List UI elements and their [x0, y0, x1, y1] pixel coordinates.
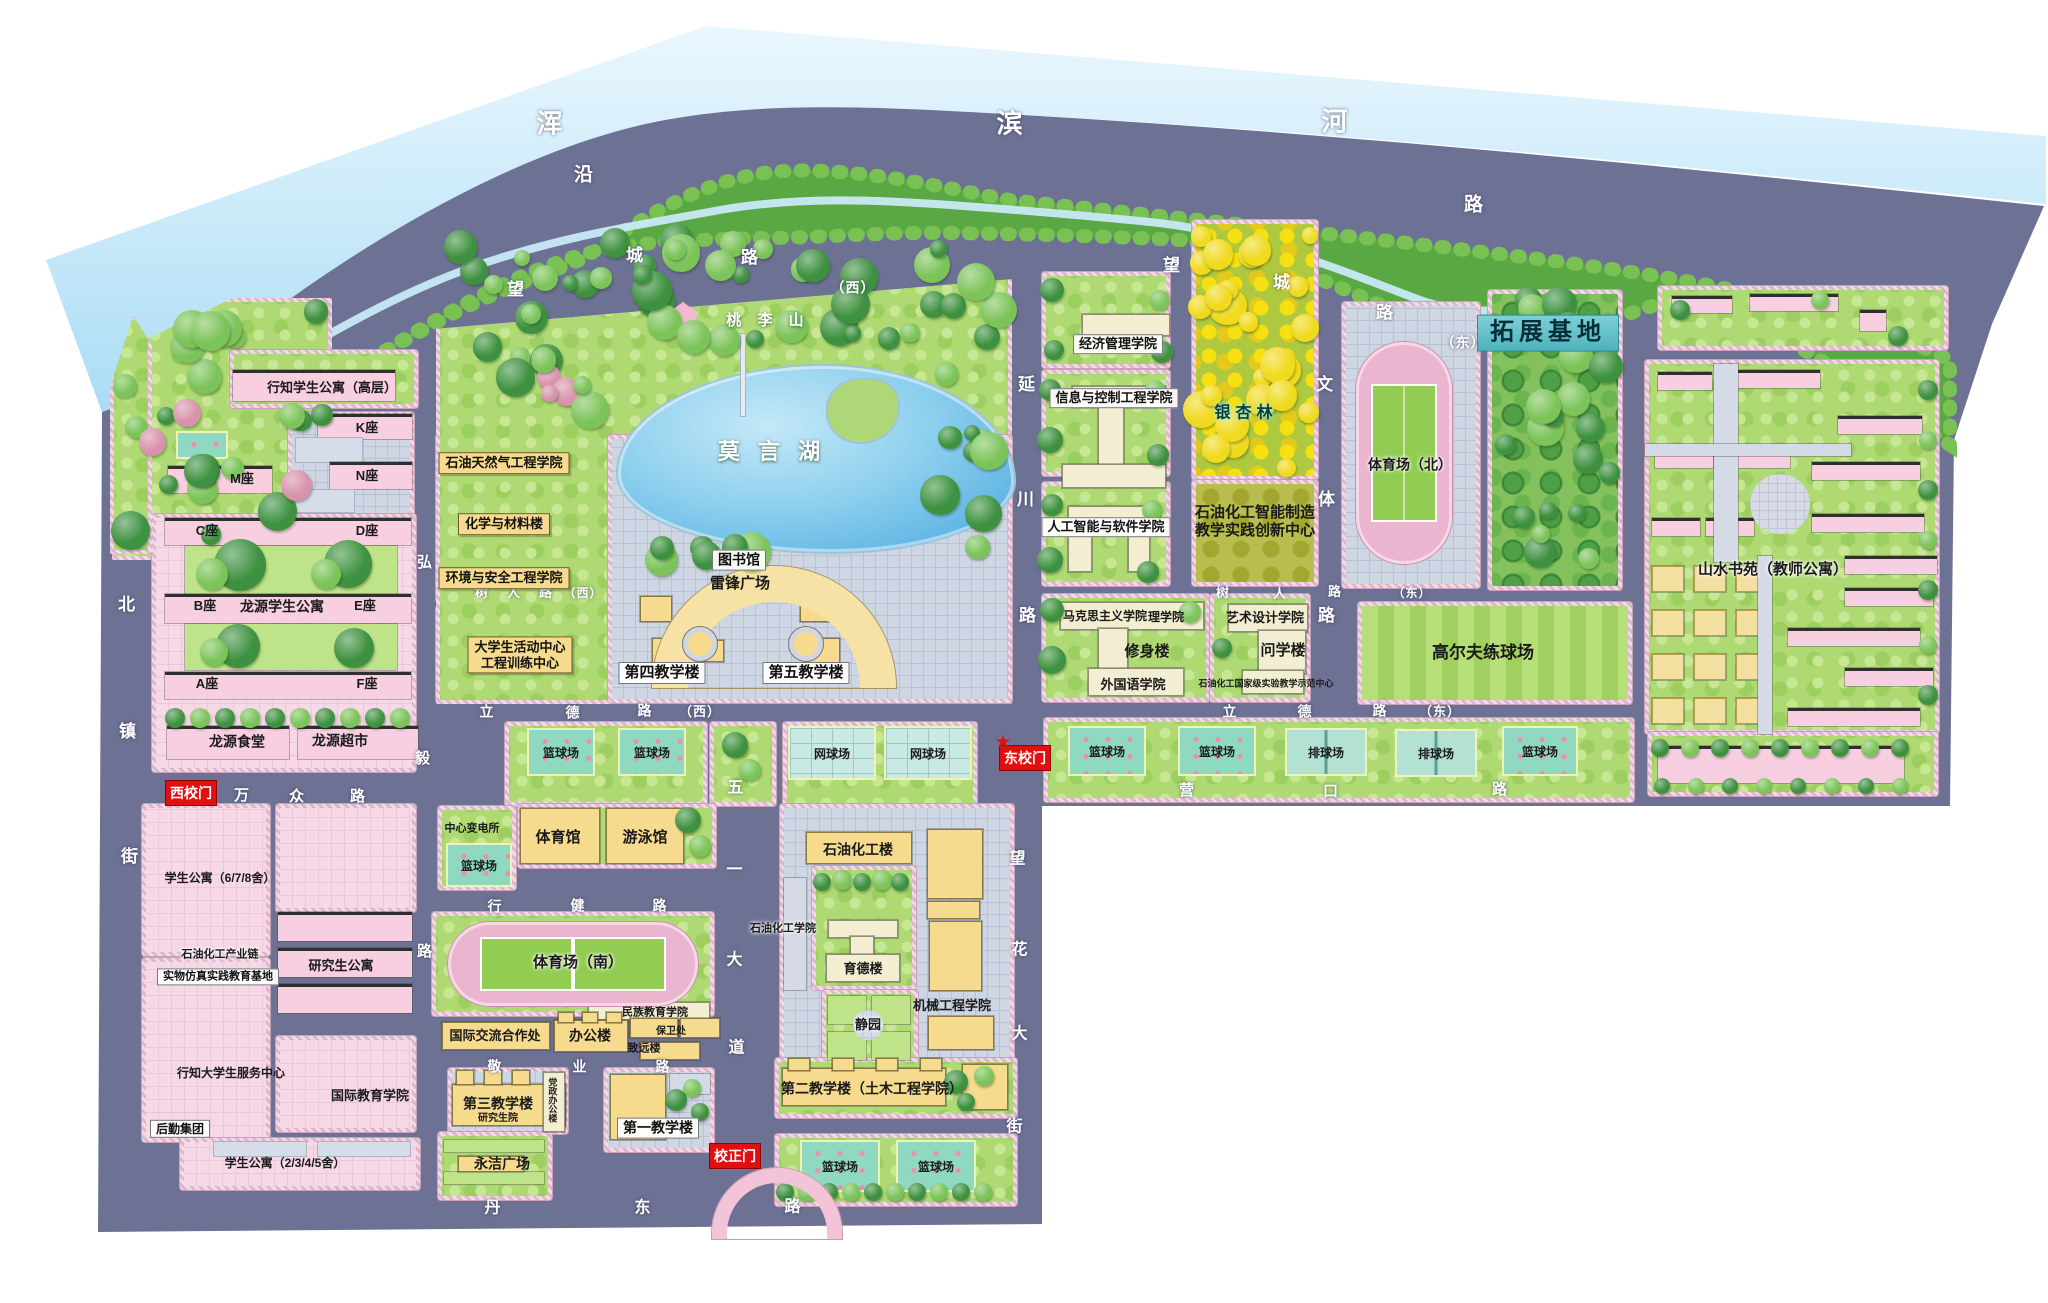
tree-icon	[872, 870, 892, 890]
tree-icon	[1861, 739, 1879, 757]
tree-icon	[1711, 739, 1729, 757]
map-label: 路	[656, 1059, 671, 1076]
map-label: 街	[121, 847, 139, 867]
map-label: 石油化工产业链	[182, 948, 259, 961]
tree-icon	[111, 511, 150, 550]
map-label: 树	[1216, 585, 1230, 601]
tree-icon	[304, 299, 329, 324]
tree-icon	[390, 708, 410, 728]
court-volleyball: 排球场	[1285, 728, 1367, 776]
building	[1652, 698, 1684, 724]
map-label: 五	[727, 778, 744, 797]
map-label: 路	[350, 788, 366, 806]
map-label: 街	[1006, 1117, 1023, 1136]
map-label: 口	[1323, 783, 1339, 801]
building	[832, 1058, 854, 1071]
building	[296, 438, 362, 462]
building	[1658, 372, 1712, 390]
building	[1062, 464, 1166, 488]
teaching-building-rotunda	[682, 626, 718, 662]
tree-icon	[311, 559, 341, 589]
tree-icon	[484, 275, 503, 294]
map-label: 立	[1223, 704, 1238, 721]
court-tennis: 网球场	[788, 726, 876, 780]
tree-icon	[311, 404, 333, 426]
tree-icon	[1040, 278, 1064, 302]
building	[920, 1058, 942, 1071]
tree-icon	[1212, 638, 1232, 658]
map-label: D座	[356, 523, 378, 539]
tree-icon	[970, 432, 1008, 470]
map-label: 问学楼	[1260, 642, 1305, 660]
building	[1788, 708, 1920, 726]
river-name-char: 河	[1321, 106, 1348, 137]
map-label: K座	[356, 420, 378, 436]
court-basketball: 篮球场	[618, 728, 686, 776]
map-label: 育德楼	[843, 961, 882, 977]
court-basketball: 篮球场	[1178, 726, 1256, 776]
building	[1652, 654, 1684, 680]
tree-icon	[1037, 547, 1063, 573]
tree-icon	[1260, 347, 1296, 383]
tree-icon	[1670, 300, 1690, 320]
tree-icon	[1576, 414, 1604, 442]
building	[928, 1016, 994, 1050]
tree-icon	[1756, 778, 1772, 794]
building	[278, 984, 412, 1013]
tree-icon	[215, 708, 235, 728]
parcel	[276, 804, 416, 912]
map-label: 体	[1318, 490, 1336, 510]
map-label: 路	[1376, 303, 1394, 323]
tree-icon	[184, 454, 218, 488]
map-label: 延	[1018, 375, 1036, 395]
map-label: 山水书苑（教师公寓）	[1698, 561, 1848, 579]
building	[1694, 698, 1726, 724]
map-label: 图书馆	[712, 550, 766, 571]
tree-icon	[1858, 778, 1874, 794]
map-label: （东）	[1392, 586, 1431, 600]
tree-icon	[473, 332, 502, 361]
tree-icon	[1568, 504, 1586, 522]
map-label: 路	[417, 943, 433, 961]
map-label: 致远楼	[628, 1042, 661, 1055]
tree-icon	[165, 708, 185, 728]
building	[1758, 556, 1772, 734]
tree-icon	[1038, 646, 1066, 674]
tree-icon	[365, 708, 385, 728]
tree-icon	[315, 708, 335, 728]
tree-icon	[930, 240, 948, 258]
tree-icon	[200, 638, 228, 666]
tree-icon	[1831, 739, 1849, 757]
building	[680, 1018, 720, 1038]
map-label: 大	[1011, 1024, 1028, 1043]
map-label: 体育馆	[535, 829, 580, 847]
building	[1652, 566, 1684, 592]
map-label: 静园	[855, 1017, 881, 1033]
tree-icon	[813, 873, 831, 891]
map-label: 城	[1273, 273, 1291, 293]
map-label: 路	[1373, 703, 1388, 720]
map-label: 中心变电所	[445, 822, 500, 835]
tree-icon	[1037, 427, 1063, 453]
map-label: 第五教学楼	[762, 662, 849, 684]
gate-star-icon: ★	[995, 732, 1011, 753]
tree-icon	[920, 475, 960, 515]
tree-icon	[173, 399, 201, 427]
tree-icon	[974, 1066, 994, 1086]
tree-icon	[265, 708, 285, 728]
map-label: 办公楼	[569, 1028, 611, 1045]
map-label: 环境与安全工程学院	[438, 567, 569, 589]
west-gate-badge: 西校门	[165, 780, 217, 806]
map-label: 行	[488, 899, 503, 916]
tree-icon	[1202, 434, 1231, 463]
map-label: 立	[480, 704, 495, 721]
building	[456, 1070, 474, 1085]
north-stadium	[1356, 342, 1452, 564]
map-label: 路	[741, 248, 759, 268]
building	[1714, 364, 1738, 562]
river-name-char: 浑	[536, 108, 563, 139]
map-label: N座	[356, 468, 378, 484]
parcel	[276, 1036, 416, 1132]
map-label: （西）	[831, 280, 876, 297]
map-label: 路	[638, 703, 653, 720]
map-label: 莫 言 湖	[718, 439, 826, 465]
tree-icon	[1918, 580, 1938, 600]
tree-icon	[1539, 502, 1557, 520]
tree-icon	[1741, 739, 1759, 757]
map-label: 保卫处	[656, 1026, 686, 1038]
map-label: 路	[653, 898, 668, 915]
tree-icon	[1150, 290, 1170, 310]
tree-icon	[190, 708, 210, 728]
map-label: 第二教学楼（土木工程学院）	[781, 1081, 963, 1098]
map-label: 德	[566, 705, 581, 722]
court-basketball: 篮球场	[527, 728, 595, 776]
tree-icon	[1919, 636, 1937, 654]
court-basketball: 篮球场	[1068, 726, 1146, 776]
map-label: 大	[726, 950, 743, 969]
map-label: 城	[626, 246, 644, 266]
map-label: M座	[230, 471, 254, 487]
building	[1082, 314, 1170, 336]
tree-icon	[1918, 480, 1938, 500]
map-label: E座	[354, 598, 376, 614]
map-label: 永洁广场	[474, 1156, 530, 1173]
map-label: 体育场（南）	[533, 954, 623, 972]
tree-icon	[722, 732, 748, 758]
building	[1694, 610, 1726, 636]
map-label: 机械工程学院	[913, 998, 991, 1014]
tree-icon	[1892, 778, 1908, 794]
map-label: 路	[1492, 781, 1508, 799]
building	[1652, 610, 1684, 636]
map-label: 龙源食堂	[209, 734, 265, 751]
map-label: 马克思主义学院	[1063, 609, 1147, 623]
map-label: 学生公寓（2/3/4/5舍）	[225, 1156, 346, 1170]
map-label: 龙源超市	[312, 733, 368, 750]
building	[927, 901, 980, 919]
map-label: 信息与控制工程学院	[1049, 388, 1178, 408]
building	[1812, 462, 1920, 480]
tree-icon	[290, 708, 310, 728]
court-volleyball: 排球场	[1395, 729, 1477, 777]
tree-icon	[941, 293, 966, 318]
parcel	[142, 958, 270, 1142]
map-label: 拓展基地	[1477, 315, 1619, 352]
tree-icon	[891, 873, 909, 891]
tree-icon	[1291, 314, 1319, 342]
tree-icon	[1919, 431, 1937, 449]
tree-icon	[139, 428, 167, 456]
court-basketball: 篮球场	[446, 843, 512, 887]
tree-icon	[1790, 778, 1806, 794]
tree-icon	[1688, 778, 1704, 794]
tree-icon	[1239, 312, 1259, 332]
campus-map: 篮球场篮球场网球场网球场篮球场篮球场排球场排球场篮球场篮球场篮球场篮球场浑河滨沿…	[0, 0, 2048, 1303]
building	[1645, 444, 1851, 456]
map-label: （东）	[1419, 704, 1461, 720]
map-label: 实物仿真实践教育基地	[157, 968, 279, 985]
map-label: 德	[1298, 704, 1313, 721]
tree-icon	[240, 708, 260, 728]
tree-icon	[1801, 739, 1819, 757]
tree-icon	[878, 327, 900, 349]
building	[278, 912, 412, 941]
map-label: 望	[1163, 256, 1181, 276]
map-label: 文	[1316, 375, 1334, 395]
map-label: 大学生活动中心 工程训练中心	[467, 636, 572, 673]
tree-icon	[157, 407, 175, 425]
map-label: 研究生公寓	[308, 958, 373, 974]
map-label: 石油化工国家级实验教学示范中心	[1198, 679, 1333, 690]
tree-icon	[1137, 561, 1159, 583]
tree-icon	[531, 347, 556, 372]
tree-icon	[845, 325, 862, 342]
circular-plaza	[1750, 474, 1810, 534]
map-label: 研究生院	[478, 1113, 518, 1125]
building	[927, 829, 983, 899]
map-label: 北	[118, 595, 136, 615]
tree-icon	[279, 403, 306, 430]
tree-icon	[1302, 227, 1319, 244]
tree-icon	[974, 324, 1000, 350]
map-label: 石油化工楼	[823, 842, 893, 859]
map-label: 路	[1328, 584, 1342, 600]
map-label: 人工智能与软件学院	[1041, 517, 1170, 537]
map-label: 第三教学楼	[463, 1096, 533, 1113]
map-label: C座	[196, 523, 218, 539]
map-label: 业	[573, 1059, 588, 1076]
tree-icon	[1589, 350, 1622, 383]
building	[558, 1012, 574, 1023]
map-label: 沿	[574, 165, 594, 188]
map-label: 镇	[119, 722, 137, 742]
map-label: 高尔夫练球场	[1432, 643, 1534, 663]
tree-icon	[1041, 494, 1063, 516]
tree-icon	[532, 265, 558, 291]
court-basketball: 篮球场	[1502, 726, 1578, 776]
tree-icon	[334, 628, 374, 668]
tree-icon	[935, 362, 958, 385]
map-label: 路	[784, 1197, 801, 1216]
map-label: 滨	[996, 108, 1023, 139]
tree-icon	[1918, 685, 1938, 705]
tree-icon	[705, 250, 736, 281]
map-label: （西）	[679, 704, 721, 720]
tree-icon	[974, 1183, 992, 1201]
tree-icon	[340, 708, 360, 728]
building	[318, 1142, 410, 1156]
building	[214, 1142, 306, 1156]
tree-icon	[1277, 459, 1296, 478]
tree-icon	[281, 470, 312, 501]
tree-icon	[952, 1183, 970, 1201]
building	[606, 1012, 622, 1023]
tree-icon	[650, 536, 674, 560]
tree-icon	[930, 1183, 948, 1201]
map-label: 万	[234, 787, 250, 805]
tree-icon	[677, 320, 710, 353]
building	[1838, 416, 1922, 434]
map-label: 艺术设计学院	[1226, 610, 1304, 626]
map-label: 弘	[417, 554, 433, 572]
building	[1098, 406, 1124, 466]
map-label: 化学与材料楼	[458, 513, 550, 535]
building	[929, 921, 982, 991]
building	[876, 1058, 898, 1071]
tree-icon	[1654, 778, 1670, 794]
map-label: 桃 李 山	[726, 312, 809, 330]
map-label: 石油天然气工程学院	[438, 452, 569, 474]
map-label: 东	[634, 1198, 651, 1217]
map-label: 路	[1019, 606, 1037, 626]
tree-icon	[675, 807, 701, 833]
tree-icon	[1888, 326, 1908, 346]
map-label: 雷锋广场	[710, 575, 770, 593]
building	[1845, 556, 1937, 574]
tree-icon	[1651, 739, 1669, 757]
map-label: 行知大学生服务中心	[177, 1066, 285, 1080]
lake-dock	[741, 334, 745, 416]
tree-icon	[1918, 380, 1938, 400]
map-label: 营	[1179, 782, 1195, 800]
building	[582, 1012, 598, 1023]
map-label: 国际教育学院	[331, 1088, 409, 1104]
map-label: 道	[728, 1038, 745, 1057]
tree-icon	[1811, 291, 1829, 309]
map-label: 游泳馆	[622, 829, 667, 847]
tree-icon	[908, 1183, 926, 1201]
map-label: 石油化工学院	[750, 922, 816, 935]
map-label: 党政办公楼	[547, 1078, 558, 1123]
map-label: 一	[726, 860, 743, 879]
map-label: 外国语学院	[1100, 677, 1165, 693]
court-tennis: 网球场	[884, 726, 972, 780]
building	[1652, 518, 1700, 536]
map-label: 银杏林	[1214, 403, 1277, 422]
building	[512, 1070, 530, 1085]
tree-icon	[1919, 531, 1937, 549]
tree-icon	[864, 1183, 882, 1201]
building	[1736, 370, 1820, 388]
main-gate-badge: 校正门	[709, 1143, 761, 1169]
map-label: 健	[571, 898, 586, 915]
map-label: 丹	[484, 1198, 501, 1217]
tree-icon	[196, 558, 228, 590]
building	[444, 1172, 544, 1184]
building	[1845, 668, 1933, 686]
tree-icon	[191, 311, 231, 351]
map-label: 学生公寓（6/7/8舍）	[165, 871, 276, 885]
tree-icon	[965, 535, 989, 559]
tree-icon	[1891, 739, 1909, 757]
map-label: 敬	[488, 1059, 503, 1076]
tree-icon	[938, 426, 961, 449]
map-label: 民族教育学院	[622, 1006, 688, 1019]
map-label: 龙源学生公寓	[240, 599, 324, 616]
map-label: A座	[196, 676, 218, 692]
map-label: B座	[194, 598, 216, 614]
tree-icon	[1044, 340, 1064, 360]
tree-icon	[514, 250, 530, 266]
map-label: 经济管理学院	[1073, 334, 1163, 354]
tree-icon	[683, 1079, 701, 1097]
map-label: 望	[1009, 849, 1026, 868]
teaching-building-rotunda	[788, 626, 824, 662]
map-label: 众	[289, 788, 305, 806]
building	[1694, 654, 1726, 680]
tree-icon	[1681, 739, 1699, 757]
map-label: 国际交流合作处	[449, 1028, 540, 1044]
map-label: 修身楼	[1124, 643, 1169, 661]
building	[640, 596, 672, 622]
building	[444, 1140, 544, 1152]
tree-icon	[1526, 389, 1561, 424]
map-label: 路	[1318, 606, 1336, 626]
map-label: 行知学生公寓（高层）	[267, 380, 397, 396]
map-label: 体育场（北）	[1368, 457, 1452, 474]
tree-icon	[832, 870, 852, 890]
tree-icon	[853, 873, 871, 891]
map-label: 人	[1273, 586, 1287, 602]
map-label: F座	[357, 676, 378, 692]
tree-icon	[187, 359, 222, 394]
tree-icon	[1241, 235, 1271, 265]
map-label: 第一教学楼	[617, 1118, 699, 1139]
tree-icon	[1040, 598, 1064, 622]
tree-icon	[842, 1183, 860, 1201]
map-label: 理学院	[1148, 610, 1184, 624]
map-label: 第四教学楼	[618, 662, 705, 684]
building	[1860, 310, 1886, 331]
tree-icon	[1722, 778, 1738, 794]
tree-icon	[1288, 276, 1308, 296]
building	[1788, 628, 1920, 646]
map-label: 毅	[415, 750, 431, 768]
tree-icon	[886, 1183, 904, 1201]
building	[788, 1058, 810, 1071]
tree-icon	[1824, 778, 1840, 794]
tree-icon	[444, 230, 478, 264]
map-label: 望	[507, 280, 525, 300]
map-label: 花	[1011, 940, 1028, 959]
building	[1812, 514, 1924, 532]
map-label: 后勤集团	[150, 1120, 210, 1138]
